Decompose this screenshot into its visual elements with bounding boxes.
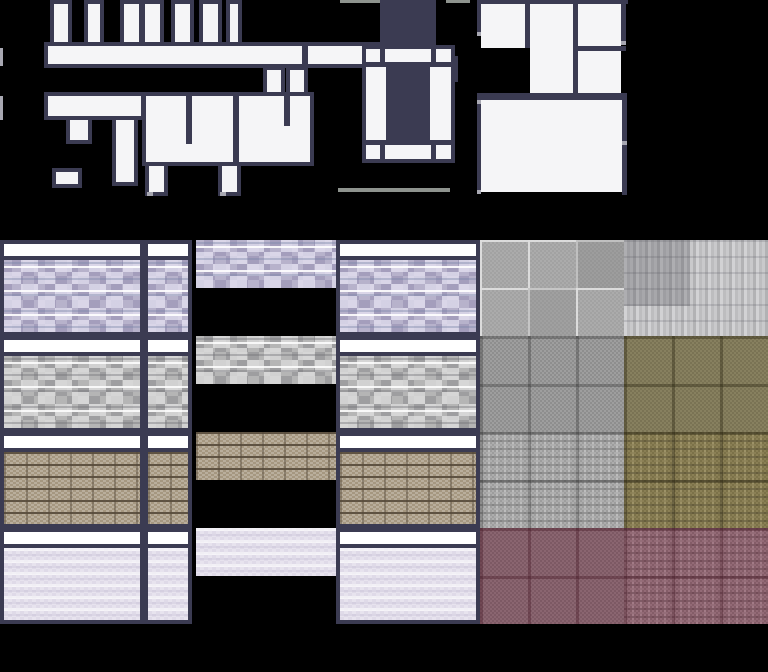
wall-tile-top-band — [4, 340, 140, 352]
roof-line-right — [446, 0, 470, 3]
floor-ornate-gray — [480, 432, 624, 528]
rooms-wall-right-mid — [622, 100, 627, 141]
purple-stone-texture-swatch — [196, 240, 336, 288]
room-large — [481, 100, 622, 192]
lavender-tile-wall-tile-wide-left — [0, 528, 144, 624]
rooms-wall-left-upper — [477, 4, 481, 32]
wall-tile-top-band — [340, 340, 476, 352]
blob-divider-1 — [186, 92, 192, 144]
wall-tile-top-band — [148, 532, 188, 544]
window-mullion-tr — [431, 45, 436, 66]
brown-brick-wall-tile-wide-left — [0, 432, 144, 528]
floor-gray-planks — [624, 240, 768, 336]
floor-checker-olive — [624, 336, 768, 432]
blob-divider-2 — [233, 92, 239, 166]
brown-brick-wall-tile-wide-right — [336, 432, 480, 528]
gray-stone-wall-tile-wide-left — [0, 336, 144, 432]
wall-tile-texture — [148, 356, 188, 428]
brown-brick-wall-tile-narrow — [144, 432, 192, 528]
wall-tile-texture — [148, 548, 188, 620]
wall-tile-top-band — [148, 340, 188, 352]
wall-tile-texture — [4, 356, 140, 428]
chimney — [380, 0, 436, 46]
foot-cap-1 — [147, 192, 153, 196]
wall-tile-top-band — [4, 244, 140, 256]
rooms-cap-left-lower — [477, 190, 481, 194]
rooms-wall-cd — [578, 46, 626, 51]
purple-stone-wall-tile-narrow — [144, 240, 192, 336]
wall-tile-texture — [340, 356, 476, 428]
window-mullion-tl — [380, 45, 385, 66]
blob-foot-2 — [218, 162, 241, 196]
wall-stub-7 — [226, 0, 242, 48]
rooms-cap-left-upper — [477, 32, 481, 36]
rooms-wall-right-upper — [621, 4, 626, 41]
wall-tile-texture — [148, 260, 188, 332]
wall-stub-3 — [120, 0, 143, 48]
rooms-wall-main — [477, 93, 627, 100]
floor-checker-maroon — [480, 528, 624, 624]
window-mullion-br — [431, 141, 436, 163]
wall-tile-texture — [340, 548, 476, 620]
edge-sliver-2 — [0, 96, 3, 120]
wall-tile-texture — [148, 452, 188, 524]
wall-tile-top-band — [340, 244, 476, 256]
wall-tile-texture — [4, 548, 140, 620]
blob-foot-1 — [145, 162, 168, 196]
gray-stone-texture-swatch — [196, 336, 336, 384]
wall-tile-top-band — [340, 436, 476, 448]
floor-checker-gray — [480, 336, 624, 432]
room-c — [578, 4, 621, 46]
wall-tile-texture — [340, 452, 476, 524]
wall-stub-1 — [50, 0, 72, 46]
wall-tile-texture — [4, 260, 140, 332]
ground-line — [338, 188, 450, 192]
floor-gray-grid — [480, 240, 624, 336]
wall-stub-5 — [171, 0, 194, 48]
hook-stub — [66, 116, 92, 144]
rooms-cap-right-upper — [621, 41, 626, 45]
gray-stone-wall-tile-wide-right — [336, 336, 480, 432]
lavender-tile-wall-tile-wide-right — [336, 528, 480, 624]
floor-ornate-olive — [624, 432, 768, 528]
window-mullion-bl — [380, 141, 385, 163]
wall-stub-6 — [199, 0, 222, 48]
lavender-tile-wall-tile-narrow — [144, 528, 192, 624]
wall-tile-top-band — [340, 532, 476, 544]
purple-stone-wall-tile-wide-left — [0, 240, 144, 336]
rooms-divider-ab — [525, 4, 530, 48]
wall-tile-top-band — [4, 532, 140, 544]
brown-brick-texture-swatch — [196, 432, 336, 480]
wall-tile-texture — [4, 452, 140, 524]
rooms-wall-right-lower — [622, 145, 627, 195]
lavender-tile-texture-swatch — [196, 528, 336, 576]
roof-line-left — [340, 0, 380, 3]
blob-divider-3 — [284, 92, 290, 126]
rooms-wall-left-lower — [477, 104, 481, 190]
tall-stub — [112, 116, 138, 186]
corridor-upper-left — [44, 42, 306, 68]
tileset-sheet — [0, 0, 768, 672]
window-opening — [386, 66, 430, 142]
wall-tile-top-band — [148, 244, 188, 256]
room-d — [578, 51, 621, 93]
edge-sliver-1 — [0, 48, 3, 66]
gray-stone-wall-tile-narrow — [144, 336, 192, 432]
floor-ornate-maroon — [624, 528, 768, 624]
wall-tile-top-band — [148, 436, 188, 448]
purple-stone-wall-tile-wide-right — [336, 240, 480, 336]
wall-stub-4 — [141, 0, 164, 48]
wall-stub-2 — [84, 0, 104, 46]
low-left-piece — [52, 168, 82, 188]
wall-tile-texture — [340, 260, 476, 332]
room-a — [481, 4, 525, 48]
wall-tile-top-band — [4, 436, 140, 448]
room-b — [530, 4, 573, 93]
rooms-wall-top — [477, 0, 628, 4]
foot-cap-2 — [220, 192, 226, 196]
